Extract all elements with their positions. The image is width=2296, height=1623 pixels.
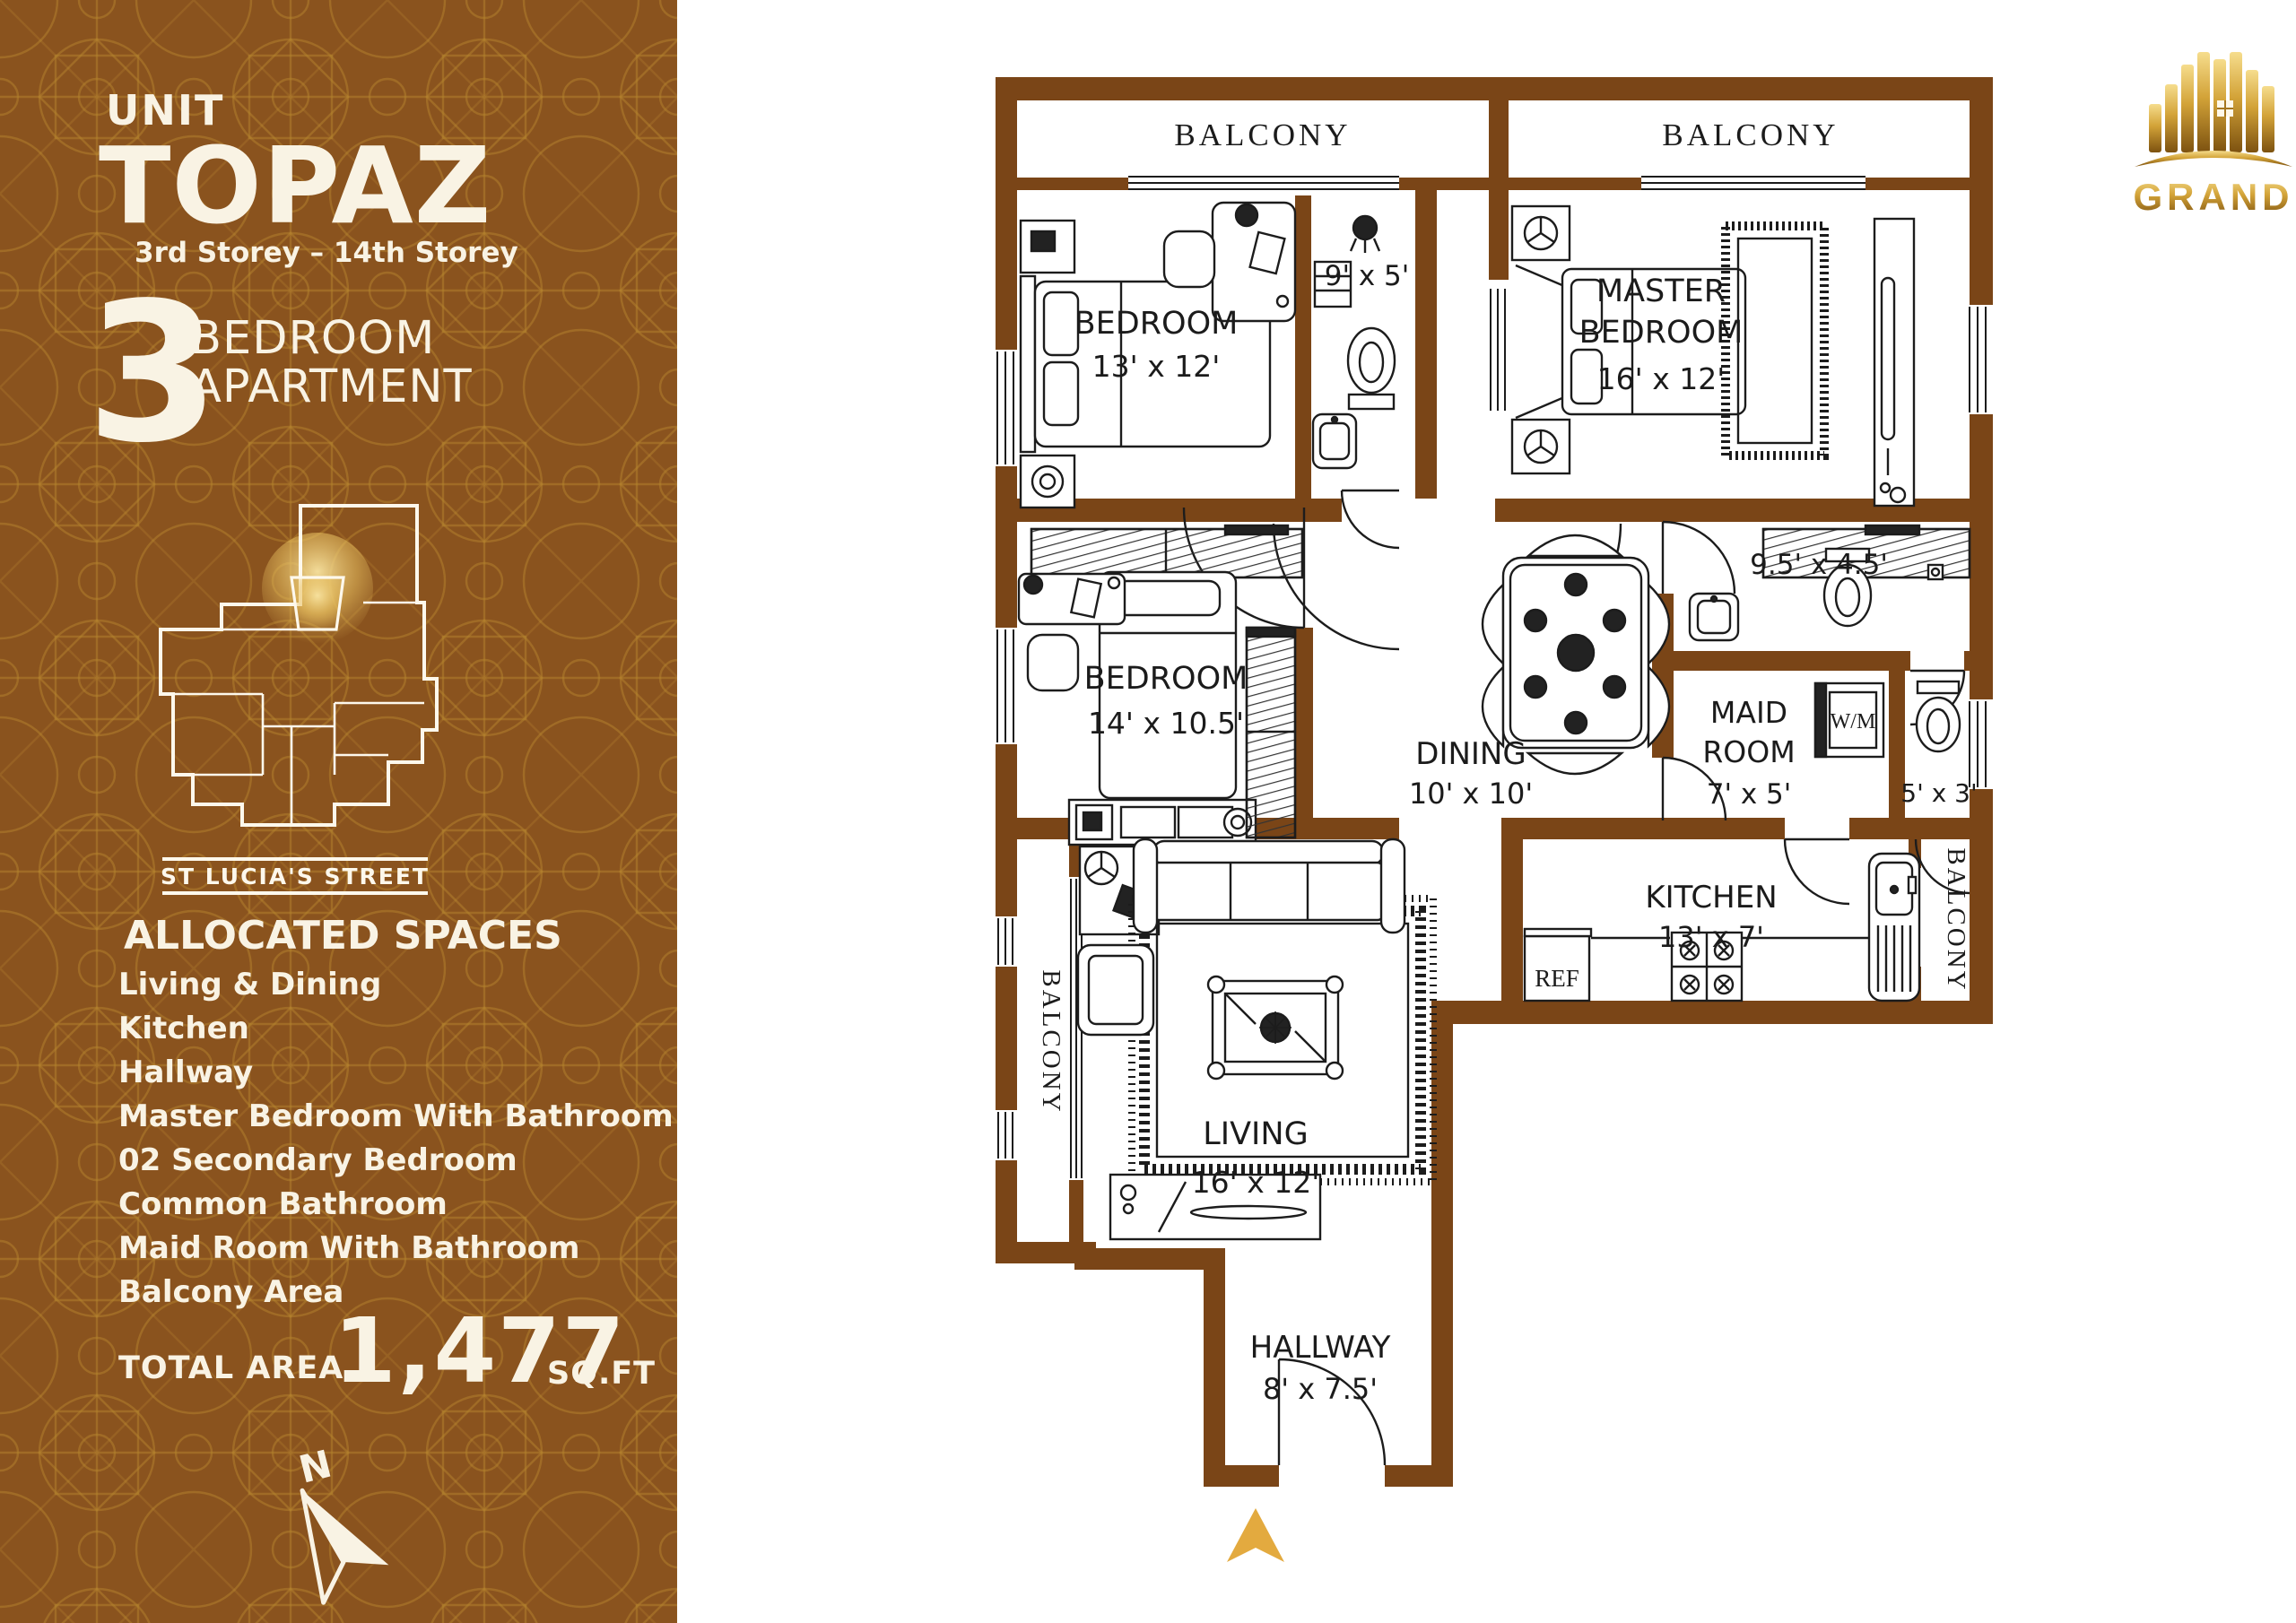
label-dining-dims: 10' x 10' xyxy=(1409,777,1533,811)
window-bedroom2-left xyxy=(992,628,1021,744)
door-bath1 xyxy=(1342,490,1399,548)
label-balcony-top-left: BALCONY xyxy=(1174,117,1351,152)
wardrobe-icon-bedroom2-side xyxy=(1247,628,1295,838)
dresser-icon-master xyxy=(1874,219,1914,506)
label-bedroom2-name: BEDROOM xyxy=(1084,661,1248,697)
label-maid-line1: MAID xyxy=(1710,695,1787,730)
entry-arrow-icon xyxy=(1227,1508,1284,1562)
allocated-item: Hallway xyxy=(118,1051,674,1095)
label-bathroom2-dims: 9.5' x 4.5' xyxy=(1750,549,1888,581)
door-kitchen xyxy=(1785,839,1849,904)
sofa-icon xyxy=(1134,839,1405,933)
allocated-item: Common Bathroom xyxy=(118,1183,674,1227)
allocated-spaces-list: Living & Dining Kitchen Hallway Master B… xyxy=(118,963,674,1315)
armchair-icon xyxy=(1078,945,1153,1035)
window-bedroom1-left xyxy=(992,350,1021,466)
window-master-right xyxy=(1964,305,1995,414)
swoosh-icon xyxy=(2135,151,2292,167)
total-area-unit: SQ.FT xyxy=(547,1356,656,1392)
label-wc-dims: 5' x 3' xyxy=(1900,778,1977,808)
apartment-type-line1: BEDROOM xyxy=(190,312,435,365)
brand-name: GRAND xyxy=(2134,176,2294,218)
window-balcony-right-sill xyxy=(1641,172,1865,195)
label-refrigerator: REF xyxy=(1535,965,1579,992)
label-living-dims: 16' x 12' xyxy=(1192,1165,1320,1200)
floor-plan: BALCONY BALCONY BEDROOM 13' x 12' 9' x 5… xyxy=(992,77,1995,1562)
brand-logo: GRAND xyxy=(2134,52,2294,218)
allocated-item: Master Bedroom With Bathroom xyxy=(118,1095,674,1139)
allocated-item: Kitchen xyxy=(118,1007,674,1051)
bathroom1-fixtures xyxy=(1313,216,1395,468)
label-bathroom1-dims: 9' x 5' xyxy=(1325,260,1410,292)
label-master-dims: 16' x 12' xyxy=(1597,361,1726,396)
label-bedroom1-dims: 13' x 12' xyxy=(1092,349,1221,384)
allocated-item: Living & Dining xyxy=(118,963,674,1007)
allocated-spaces-heading: ALLOCATED SPACES xyxy=(124,913,562,959)
window-balcony-left-sill xyxy=(1128,172,1399,195)
apartment-type-line2: APARTMENT xyxy=(190,360,473,413)
label-maid-line2: ROOM xyxy=(1702,734,1795,769)
label-hallway-name: HALLWAY xyxy=(1250,1330,1391,1366)
door-bath2 xyxy=(1663,522,1735,594)
label-hallway-dims: 8' x 7.5' xyxy=(1263,1372,1378,1406)
allocated-item: 02 Secondary Bedroom xyxy=(118,1139,674,1183)
label-master-line2: BEDROOM xyxy=(1579,315,1744,351)
unit-name: TOPAZ xyxy=(99,124,491,247)
total-area-label: TOTAL AREA xyxy=(118,1350,344,1386)
wc-toilet-icon xyxy=(1917,681,1960,751)
label-kitchen-dims: 13' x 7' xyxy=(1658,920,1764,954)
coffee-table-icon xyxy=(1208,976,1343,1079)
label-bedroom2-dims: 14' x 10.5' xyxy=(1088,706,1244,741)
label-bedroom1-name: BEDROOM xyxy=(1074,306,1239,342)
label-balcony-top-right: BALCONY xyxy=(1662,117,1839,152)
label-balcony-side-left: BALCONY xyxy=(1037,969,1065,1114)
label-living-name: LIVING xyxy=(1203,1116,1308,1152)
sidebar: UNIT TOPAZ 3rd Storey – 14th Storey 3 BE… xyxy=(0,0,677,1623)
allocated-item: Maid Room With Bathroom xyxy=(118,1227,674,1271)
building-icon xyxy=(2135,52,2292,167)
label-master-line1: MASTER xyxy=(1596,273,1726,309)
label-maid-dims: 7' x 5' xyxy=(1707,778,1792,811)
wardrobe-icon-bedroom2 xyxy=(1031,525,1302,577)
label-kitchen-name: KITCHEN xyxy=(1645,880,1777,916)
window-wc-right xyxy=(1964,699,1995,789)
label-dining-name: DINING xyxy=(1415,736,1526,772)
label-washing-machine: W/M xyxy=(1831,710,1876,733)
window-master-left xyxy=(1485,287,1512,412)
label-balcony-side-right: BALCONY xyxy=(1942,847,1970,992)
brochure-page: ST LUCIA'S STREET N GRAND xyxy=(0,0,2296,1623)
